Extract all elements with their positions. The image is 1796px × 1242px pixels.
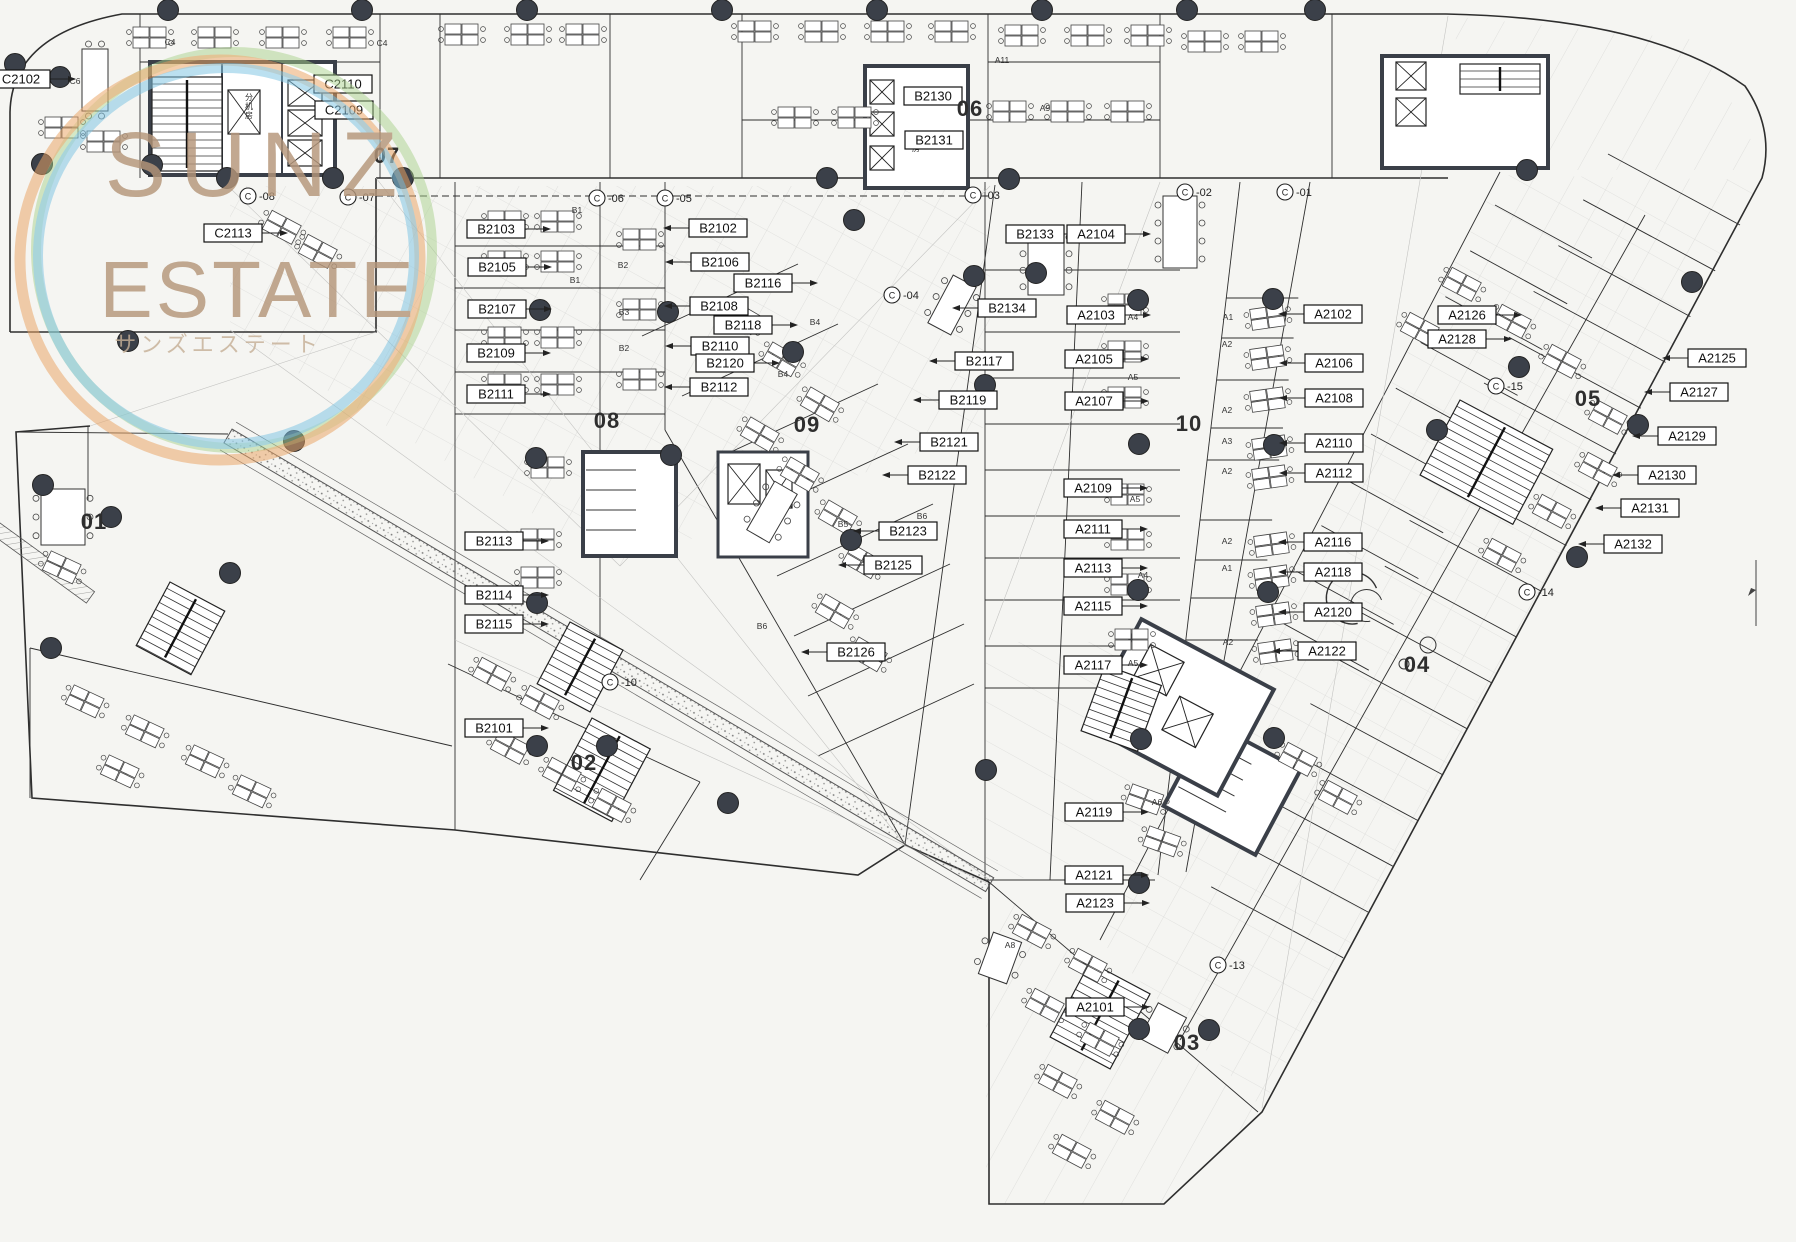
column-dot bbox=[1128, 580, 1149, 601]
column-dot bbox=[1177, 0, 1198, 21]
svg-text:A2131: A2131 bbox=[1631, 501, 1669, 516]
room-label: A2130 bbox=[1612, 466, 1696, 484]
sub-room-label: A2 bbox=[1223, 637, 1234, 647]
sub-room-label: B2 bbox=[619, 343, 630, 353]
svg-text:A2116: A2116 bbox=[1315, 535, 1352, 550]
svg-text:B2105: B2105 bbox=[478, 260, 516, 275]
sub-room-label: A3 bbox=[1222, 436, 1233, 446]
zone-number: 01 bbox=[81, 509, 107, 534]
column-dot bbox=[1509, 357, 1530, 378]
svg-text:A2123: A2123 bbox=[1076, 896, 1114, 911]
column-dot bbox=[999, 169, 1020, 190]
svg-text:A2109: A2109 bbox=[1074, 481, 1112, 496]
sub-room-label: A5 bbox=[1128, 658, 1139, 668]
room-label: B2131 bbox=[905, 131, 963, 149]
column-dot bbox=[783, 342, 804, 363]
svg-text:A2106: A2106 bbox=[1315, 356, 1353, 371]
column-dot bbox=[41, 638, 62, 659]
svg-text:A2110: A2110 bbox=[1316, 436, 1353, 451]
column-dot bbox=[220, 563, 241, 584]
sub-room-label: A2 bbox=[1222, 466, 1233, 476]
svg-text:C: C bbox=[594, 194, 601, 204]
sub-room-label: B5 bbox=[838, 519, 849, 529]
svg-text:B2109: B2109 bbox=[477, 346, 515, 361]
svg-text:-04: -04 bbox=[903, 290, 919, 302]
column-dot bbox=[1305, 0, 1326, 21]
column-dot bbox=[1682, 272, 1703, 293]
column-dot bbox=[976, 760, 997, 781]
column-dot bbox=[597, 736, 618, 757]
svg-text:A2130: A2130 bbox=[1648, 468, 1686, 483]
room-label: A2125 bbox=[1662, 349, 1746, 367]
room-label: B2101 bbox=[465, 719, 549, 737]
column-dot bbox=[964, 266, 985, 287]
column-dot bbox=[1264, 728, 1285, 749]
svg-text:B2133: B2133 bbox=[1016, 227, 1054, 242]
column-dot bbox=[1131, 729, 1152, 750]
svg-text:B2122: B2122 bbox=[918, 468, 956, 483]
column-dot bbox=[1032, 0, 1053, 21]
svg-text:B2117: B2117 bbox=[966, 354, 1003, 369]
room-label: B2123 bbox=[853, 522, 937, 540]
sub-room-label: A4 bbox=[1138, 570, 1149, 580]
svg-text:B2113: B2113 bbox=[476, 534, 513, 549]
svg-text:A2102: A2102 bbox=[1314, 307, 1352, 322]
sub-room-label: A8 bbox=[1005, 940, 1016, 950]
sub-room-label: B1 bbox=[572, 205, 583, 215]
sub-room-label: A2 bbox=[1222, 339, 1233, 349]
floor-plan-page: C-08C-07C-06C-05C-04C-03C-02C-01C-10C-13… bbox=[0, 0, 1796, 1242]
svg-text:A2127: A2127 bbox=[1680, 385, 1718, 400]
svg-text:A2118: A2118 bbox=[1315, 565, 1352, 580]
column-dot bbox=[1258, 582, 1279, 603]
sub-room-label: A2 bbox=[1222, 536, 1233, 546]
column-dot bbox=[158, 0, 179, 21]
watermark-text-line1: SUNZ bbox=[105, 114, 411, 216]
svg-text:B2110: B2110 bbox=[702, 339, 739, 354]
svg-text:A2125: A2125 bbox=[1698, 351, 1736, 366]
sub-room-label: A1 bbox=[1222, 563, 1233, 573]
sub-room-label: B2 bbox=[618, 260, 629, 270]
svg-text:-02: -02 bbox=[1196, 187, 1212, 199]
sub-room-label: A4 bbox=[1128, 312, 1139, 322]
svg-text:C: C bbox=[1215, 961, 1222, 971]
svg-text:A2128: A2128 bbox=[1438, 332, 1476, 347]
svg-text:C: C bbox=[1282, 188, 1289, 198]
column-dot bbox=[1128, 290, 1149, 311]
watermark-text-line2: ESTATE bbox=[99, 245, 416, 334]
svg-text:C: C bbox=[1524, 588, 1531, 598]
room-label: A2110 bbox=[1279, 434, 1363, 452]
svg-text:-15: -15 bbox=[1507, 381, 1523, 393]
sub-room-label: B4 bbox=[778, 369, 789, 379]
sub-room-label: A2 bbox=[1222, 405, 1233, 415]
svg-text:B2111: B2111 bbox=[478, 387, 514, 402]
column-dot bbox=[50, 67, 71, 88]
zone-number: 02 bbox=[571, 750, 597, 775]
sub-room-label: A9 bbox=[1040, 103, 1051, 113]
svg-text:C: C bbox=[1182, 188, 1189, 198]
sub-room-label: B1 bbox=[570, 275, 581, 285]
column-dot bbox=[33, 475, 54, 496]
sub-room-label: A11 bbox=[995, 55, 1010, 65]
svg-text:B2121: B2121 bbox=[930, 435, 968, 450]
watermark: SUNZ ESTATE サンズエステート bbox=[20, 52, 432, 460]
svg-text:B2119: B2119 bbox=[950, 393, 987, 408]
zone-number: 09 bbox=[794, 412, 820, 437]
zone-number: 08 bbox=[594, 408, 620, 433]
svg-text:A2119: A2119 bbox=[1076, 805, 1113, 820]
sub-room-label: A5 bbox=[1128, 372, 1139, 382]
sub-room-label: C4 bbox=[377, 38, 388, 48]
room-label: A2127 bbox=[1644, 383, 1728, 401]
svg-text:B2107: B2107 bbox=[478, 302, 516, 317]
svg-text:A2107: A2107 bbox=[1075, 394, 1113, 409]
column-dot bbox=[517, 0, 538, 21]
sub-room-label: C4 bbox=[165, 37, 176, 47]
svg-text:B2106: B2106 bbox=[701, 255, 739, 270]
column-dot bbox=[844, 210, 865, 231]
room-label: A2108 bbox=[1279, 389, 1363, 407]
svg-text:A2111: A2111 bbox=[1075, 522, 1111, 537]
svg-text:A2132: A2132 bbox=[1614, 537, 1652, 552]
svg-text:B2103: B2103 bbox=[477, 222, 515, 237]
zone-number: 10 bbox=[1176, 411, 1202, 436]
svg-text:B2123: B2123 bbox=[889, 524, 927, 539]
sub-room-label: A1 bbox=[1223, 312, 1234, 322]
sub-room-label: B4 bbox=[810, 317, 821, 327]
sub-room-label: A5 bbox=[1130, 494, 1141, 504]
column-dot bbox=[1026, 263, 1047, 284]
room-label: A2102 bbox=[1278, 305, 1362, 323]
column-dot bbox=[1129, 1019, 1150, 1040]
svg-text:-13: -13 bbox=[1229, 960, 1245, 972]
sub-room-label: B3 bbox=[619, 307, 630, 317]
svg-text:B2125: B2125 bbox=[874, 558, 912, 573]
room-label: B2126 bbox=[801, 643, 885, 661]
svg-text:A2101: A2101 bbox=[1076, 1000, 1114, 1015]
svg-text:C2113: C2113 bbox=[214, 226, 251, 241]
column-dot bbox=[817, 168, 838, 189]
svg-text:B2118: B2118 bbox=[725, 318, 762, 333]
svg-text:B2131: B2131 bbox=[915, 133, 953, 148]
svg-text:-10: -10 bbox=[621, 677, 637, 689]
svg-text:C: C bbox=[662, 194, 669, 204]
svg-text:C: C bbox=[607, 678, 614, 688]
svg-text:A2104: A2104 bbox=[1077, 227, 1115, 242]
svg-text:-01: -01 bbox=[1296, 187, 1312, 199]
room-label: A2132 bbox=[1578, 535, 1662, 553]
zone-number: 04 bbox=[1404, 652, 1430, 677]
room-label: B2122 bbox=[882, 466, 966, 484]
room-label: B2130 bbox=[904, 87, 962, 105]
column-dot bbox=[1263, 289, 1284, 310]
svg-text:-14: -14 bbox=[1538, 587, 1554, 599]
svg-text:A2105: A2105 bbox=[1075, 352, 1113, 367]
column-dot bbox=[1567, 547, 1588, 568]
svg-text:-06: -06 bbox=[608, 193, 624, 205]
svg-text:B2101: B2101 bbox=[475, 721, 513, 736]
svg-text:B2126: B2126 bbox=[837, 645, 875, 660]
svg-text:C: C bbox=[1493, 382, 1500, 392]
svg-text:A2112: A2112 bbox=[1316, 466, 1353, 481]
svg-text:A2115: A2115 bbox=[1075, 599, 1112, 614]
svg-text:B2108: B2108 bbox=[700, 299, 738, 314]
column-dot bbox=[1129, 434, 1150, 455]
svg-text:A2121: A2121 bbox=[1075, 868, 1113, 883]
zone-number: 05 bbox=[1575, 386, 1601, 411]
svg-text:B2115: B2115 bbox=[476, 617, 513, 632]
watermark-text-line3: サンズエステート bbox=[114, 332, 322, 357]
column-dot bbox=[1264, 435, 1285, 456]
column-dot bbox=[1517, 160, 1538, 181]
svg-text:A2113: A2113 bbox=[1075, 561, 1112, 576]
svg-text:-05: -05 bbox=[676, 193, 692, 205]
svg-text:A2129: A2129 bbox=[1668, 429, 1706, 444]
column-dot bbox=[1199, 1020, 1220, 1041]
svg-text:B2120: B2120 bbox=[706, 356, 744, 371]
column-dot bbox=[1628, 415, 1649, 436]
column-dot bbox=[352, 0, 373, 21]
sub-room-label: B6 bbox=[757, 621, 768, 631]
column-dot bbox=[712, 0, 733, 21]
sub-room-label: B6 bbox=[917, 511, 928, 521]
svg-text:A2117: A2117 bbox=[1075, 658, 1112, 673]
zone-number: 03 bbox=[1174, 1030, 1200, 1055]
svg-text:A2103: A2103 bbox=[1077, 308, 1115, 323]
column-dot bbox=[718, 793, 739, 814]
room-label: A2112 bbox=[1279, 464, 1363, 482]
zone-number: 06 bbox=[957, 96, 983, 121]
svg-text:B2112: B2112 bbox=[701, 380, 738, 395]
column-dot bbox=[867, 0, 888, 21]
svg-text:B2114: B2114 bbox=[476, 588, 513, 603]
svg-text:C: C bbox=[970, 191, 977, 201]
svg-text:A2108: A2108 bbox=[1315, 391, 1353, 406]
svg-text:A2120: A2120 bbox=[1314, 605, 1352, 620]
floor-plan-canvas: C-08C-07C-06C-05C-04C-03C-02C-01C-10C-13… bbox=[0, 0, 1796, 1242]
sub-room-label: A6 bbox=[1152, 797, 1163, 807]
column-dot bbox=[661, 445, 682, 466]
room-label: A2131 bbox=[1595, 499, 1679, 517]
svg-text:A2122: A2122 bbox=[1308, 644, 1346, 659]
svg-text:C: C bbox=[889, 291, 896, 301]
grid-marker: C-01 bbox=[1277, 184, 1312, 200]
column-dot bbox=[526, 448, 547, 469]
svg-text:A2126: A2126 bbox=[1448, 308, 1486, 323]
svg-text:B2116: B2116 bbox=[745, 276, 782, 291]
svg-text:C2102: C2102 bbox=[2, 72, 40, 87]
svg-text:B2134: B2134 bbox=[988, 301, 1026, 316]
svg-text:B2102: B2102 bbox=[699, 221, 737, 236]
room-label: A2106 bbox=[1279, 354, 1363, 372]
svg-text:-03: -03 bbox=[984, 190, 1000, 202]
svg-text:B2130: B2130 bbox=[914, 89, 952, 104]
column-dot bbox=[1427, 420, 1448, 441]
room-label: A2116 bbox=[1278, 533, 1362, 551]
column-dot bbox=[527, 736, 548, 757]
